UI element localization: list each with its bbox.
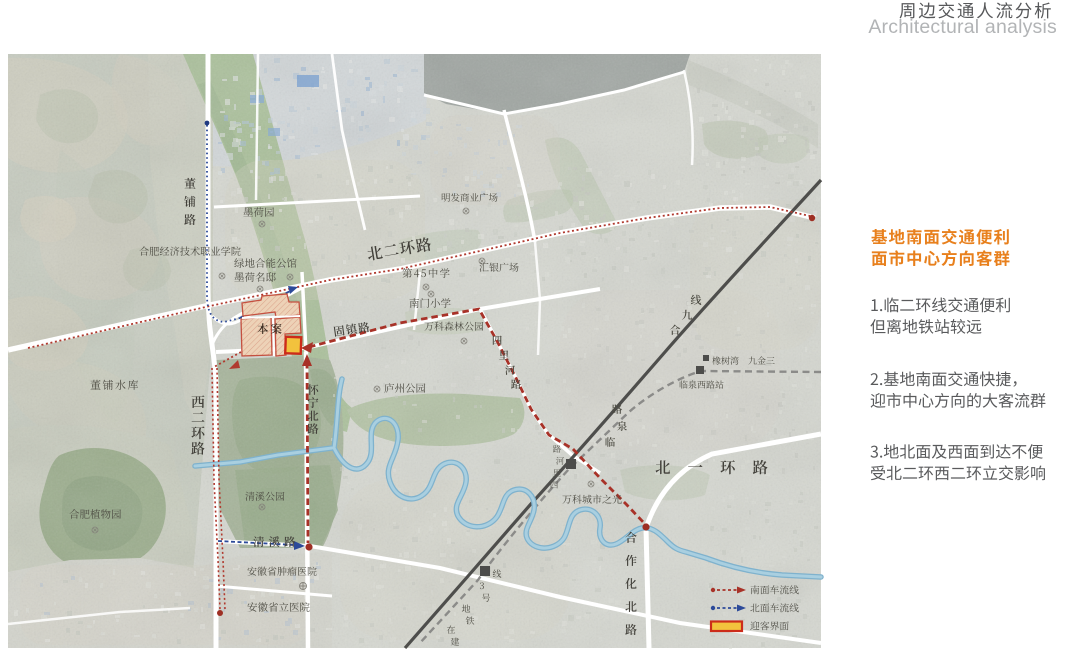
svg-text:Architectural analysis: Architectural analysis xyxy=(868,16,1057,38)
